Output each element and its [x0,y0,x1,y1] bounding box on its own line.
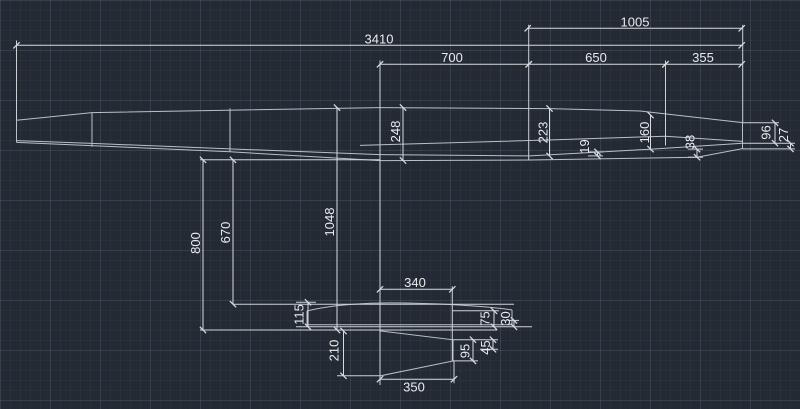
dim-label-95: 95 [458,344,473,358]
dim-label-340: 340 [404,275,426,290]
fin-polygon [380,331,453,376]
wing-hinge-line-left [17,141,381,155]
dim-label-650: 650 [585,50,607,65]
extension-lines [17,25,796,385]
dim-label-30: 30 [498,311,513,325]
dim-label-3410: 3410 [365,32,394,47]
fin-outline [380,331,453,376]
dim-label-800: 800 [188,232,203,254]
dim-label-355: 355 [692,50,714,65]
dim-label-248: 248 [388,121,403,143]
dim-label-1005: 1005 [621,15,650,30]
dim-label-350: 350 [403,380,425,395]
dim-label-160: 160 [637,122,652,144]
cad-drawing-canvas[interactable]: 3410 1005 700 650 355 340 350 248 223 19… [0,0,800,409]
dim-label-27: 27 [776,128,791,142]
dim-label-700: 700 [441,50,463,65]
wing-trailing-edge-left [17,142,381,160]
dim-label-45: 45 [478,340,493,354]
dim-label-38: 38 [683,135,698,149]
dim-label-96: 96 [759,125,774,139]
dim-label-1048: 1048 [322,208,337,237]
dim-label-75: 75 [478,311,493,325]
dim-label-115: 115 [292,304,307,325]
glider-dimension-drawing: 3410 1005 700 650 355 340 350 248 223 19… [0,0,800,409]
dimension-labels: 3410 1005 700 650 355 340 350 248 223 19… [188,15,791,395]
dim-label-210: 210 [327,340,342,362]
dim-label-19: 19 [577,139,592,153]
dim-label-670: 670 [218,222,233,244]
dim-label-223: 223 [536,122,551,144]
